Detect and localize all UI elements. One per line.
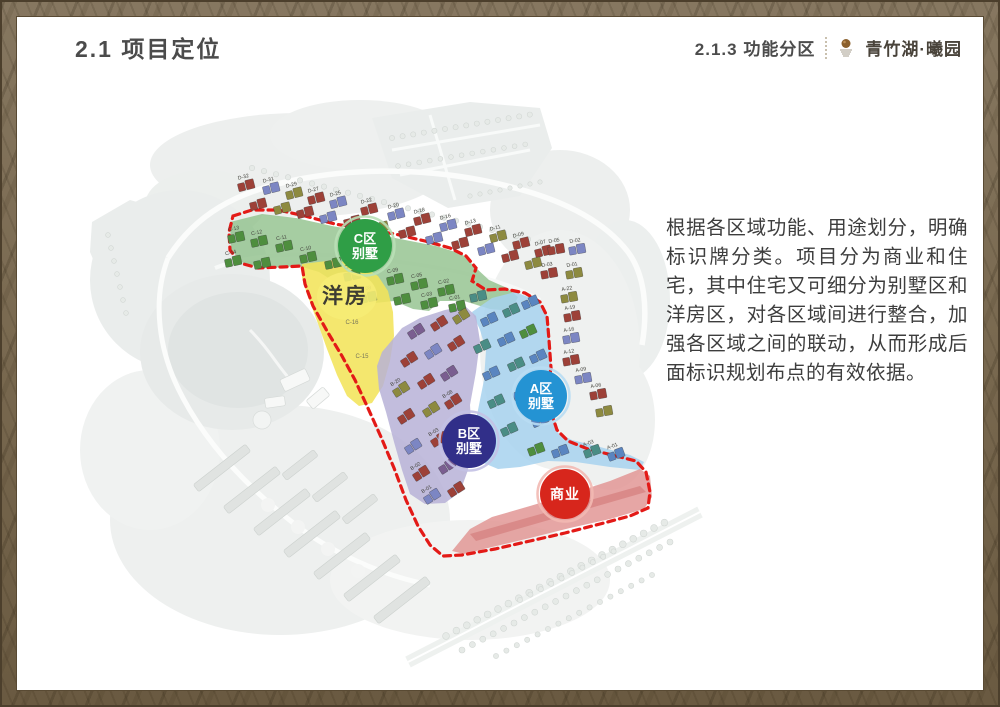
map-text-lot-c15: C-15: [355, 354, 369, 360]
pavilion-logo-icon: [837, 38, 855, 58]
map-text-lot-c16: C-16: [345, 320, 359, 326]
house-marker: D-20: [385, 201, 405, 221]
house-marker: [477, 243, 495, 256]
zone-badge-label: A区别墅: [527, 381, 554, 411]
house-marker: D-13: [462, 217, 482, 237]
header-divider: [825, 37, 827, 59]
zone-badge-a-villa: A区别墅: [513, 368, 570, 425]
zone-badge-label: 商业: [550, 486, 580, 502]
page-title: 2.1 项目定位: [75, 30, 221, 64]
slide-frame: D-32D-31D-29D-27D-25D-22D-20D-18D-16D-13…: [0, 0, 1000, 707]
house-marker: D-18: [411, 206, 431, 226]
zone-badge-label: B区别墅: [455, 426, 482, 456]
header-right: 2.1.3 功能分区 青竹湖·曦园: [695, 35, 962, 60]
zone-badge-b-villa: B区别墅: [440, 412, 499, 471]
brand-name: 青竹湖·曦园: [865, 35, 962, 60]
slide-content: D-32D-31D-29D-27D-25D-22D-20D-18D-16D-13…: [17, 17, 983, 690]
map-text-yangfang-label: 洋房: [322, 284, 368, 308]
description-text: 根据各区域功能、用途划分，明确标识牌分类。项目分为商业和住宅，其中住宅又可细分为…: [666, 214, 968, 388]
zone-badge-label: C区别墅: [351, 231, 378, 261]
zone-badge-commercial: 商业: [538, 467, 593, 522]
house-marker: [451, 237, 469, 250]
zone-badge-c-villa: C区别墅: [336, 217, 395, 276]
section-label: 2.1.3 功能分区: [695, 35, 816, 60]
house-marker: D-16: [437, 212, 457, 232]
